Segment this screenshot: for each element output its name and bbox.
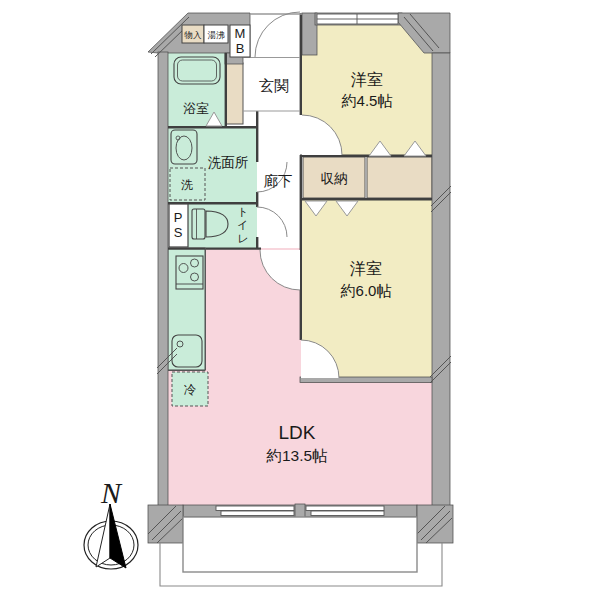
meter-box-char-m: M bbox=[235, 26, 246, 41]
western2-area: 約6.0帖 bbox=[341, 282, 392, 299]
western1-label: 洋室 bbox=[351, 71, 383, 88]
window-ldk-left-pane2 bbox=[221, 511, 294, 516]
ldk-area: 約13.5帖 bbox=[265, 447, 327, 464]
entrance-door-arc bbox=[255, 12, 300, 57]
water-heater-label: 湯沸 bbox=[208, 30, 226, 40]
wall-right bbox=[432, 53, 450, 507]
compass-needle-black bbox=[110, 504, 126, 568]
window-ldk-right-pane bbox=[306, 506, 384, 511]
compass-n-label: N bbox=[100, 476, 123, 509]
window-center-post bbox=[295, 504, 305, 518]
balcony-floor bbox=[183, 517, 417, 572]
balcony bbox=[160, 517, 442, 586]
ldk-label: LDK bbox=[279, 422, 316, 443]
meter-box-char-b: B bbox=[236, 41, 245, 56]
toilet-door-arc bbox=[257, 207, 287, 237]
storage-small-label: 物入 bbox=[184, 30, 203, 40]
toilet-char-1: ト bbox=[237, 206, 248, 218]
wall-bottom-right-block bbox=[417, 505, 453, 543]
window-ldk-right-pane2 bbox=[311, 511, 384, 516]
fridge-label: 冷 bbox=[184, 383, 197, 397]
wall-bottom-left-block bbox=[148, 505, 183, 543]
entrance-label: 玄関 bbox=[259, 77, 289, 94]
toilet-char-3: レ bbox=[237, 232, 248, 244]
toilet-char-2: イ bbox=[237, 219, 248, 231]
washroom-label: 洗面所 bbox=[208, 155, 249, 170]
closet-label: 収納 bbox=[321, 171, 348, 186]
corridor-label: 廊下 bbox=[264, 173, 293, 189]
floor-plan-page: 洋室 約4.5帖 洋室 約6.0帖 LDK 約13.5帖 玄関 浴室 洗面所 廊… bbox=[0, 0, 600, 600]
closet-second-box bbox=[367, 157, 432, 198]
bathroom-label: 浴室 bbox=[183, 101, 209, 116]
western1-area: 約4.5帖 bbox=[342, 92, 393, 109]
shoe-cabinet bbox=[226, 63, 244, 124]
pipe-space-char-p: P bbox=[174, 210, 183, 225]
floor-plan-svg: 洋室 約4.5帖 洋室 約6.0帖 LDK 約13.5帖 玄関 浴室 洗面所 廊… bbox=[0, 0, 600, 600]
pipe-space-char-s: S bbox=[174, 225, 183, 240]
window-ldk-left-pane bbox=[216, 506, 294, 511]
washer-label: 洗 bbox=[181, 178, 193, 192]
western2-label: 洋室 bbox=[350, 260, 382, 277]
wall-left bbox=[158, 52, 168, 507]
compass-needle-white bbox=[96, 504, 110, 567]
compass: N bbox=[84, 476, 138, 569]
